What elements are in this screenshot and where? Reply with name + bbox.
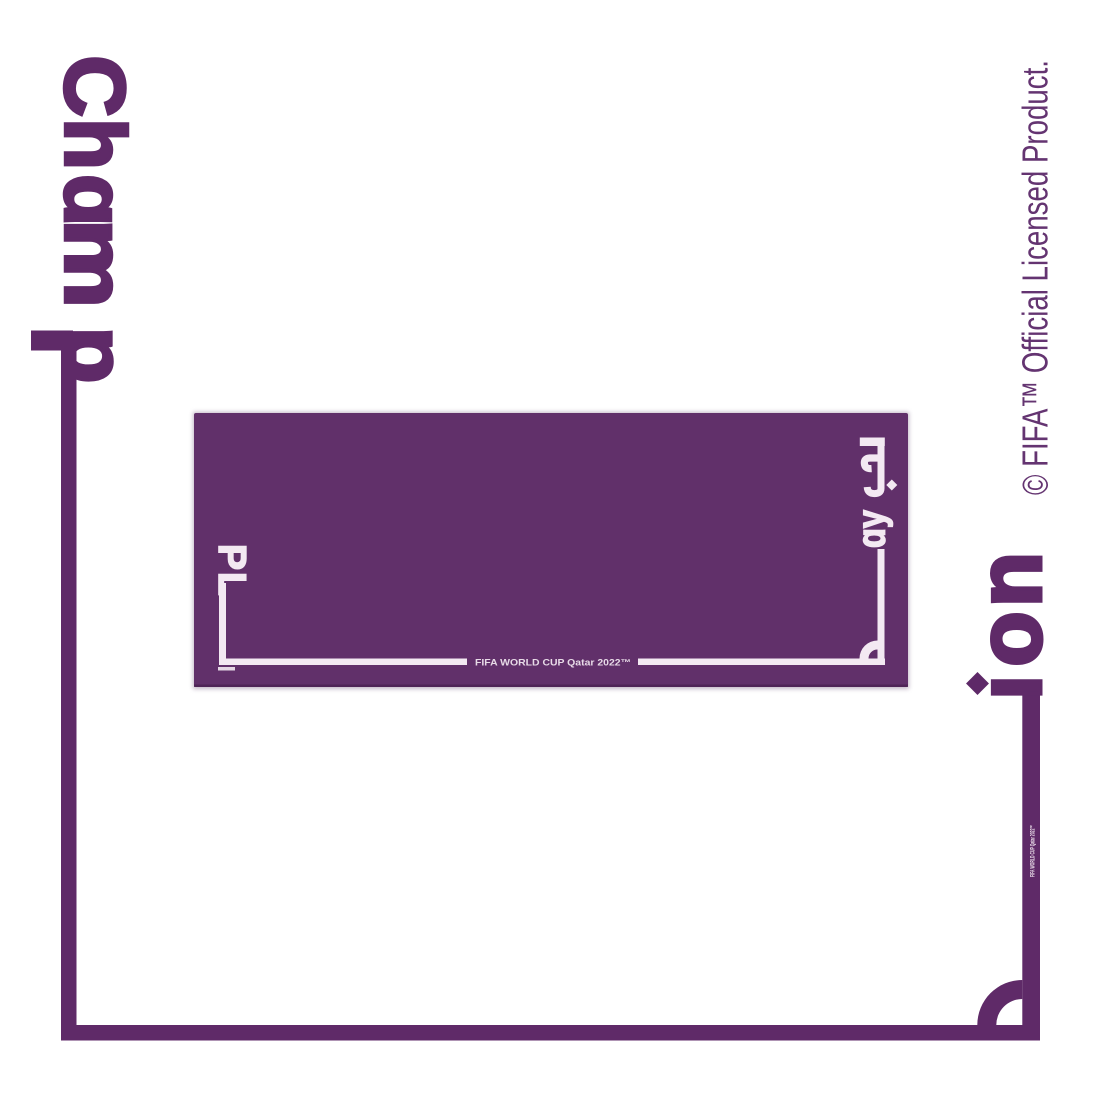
- svg-text:h: h: [47, 118, 142, 170]
- svg-text:ɑy: ɑy: [851, 510, 894, 548]
- svg-text:PL: PL: [210, 544, 253, 598]
- svg-text:© FIFA™ Official Licensed Prod: © FIFA™ Official Licensed Product.: [1015, 60, 1056, 495]
- svg-text:FIFA WORLD CUP Qatar 2022™: FIFA WORLD CUP Qatar 2022™: [1030, 825, 1037, 877]
- svg-text:m: m: [47, 219, 142, 308]
- svg-text:C: C: [47, 56, 142, 117]
- svg-text:o: o: [961, 612, 1061, 667]
- svg-text:FIFA WORLD CUP Qatar 2022™: FIFA WORLD CUP Qatar 2022™: [475, 658, 631, 668]
- svg-text:n: n: [961, 552, 1061, 607]
